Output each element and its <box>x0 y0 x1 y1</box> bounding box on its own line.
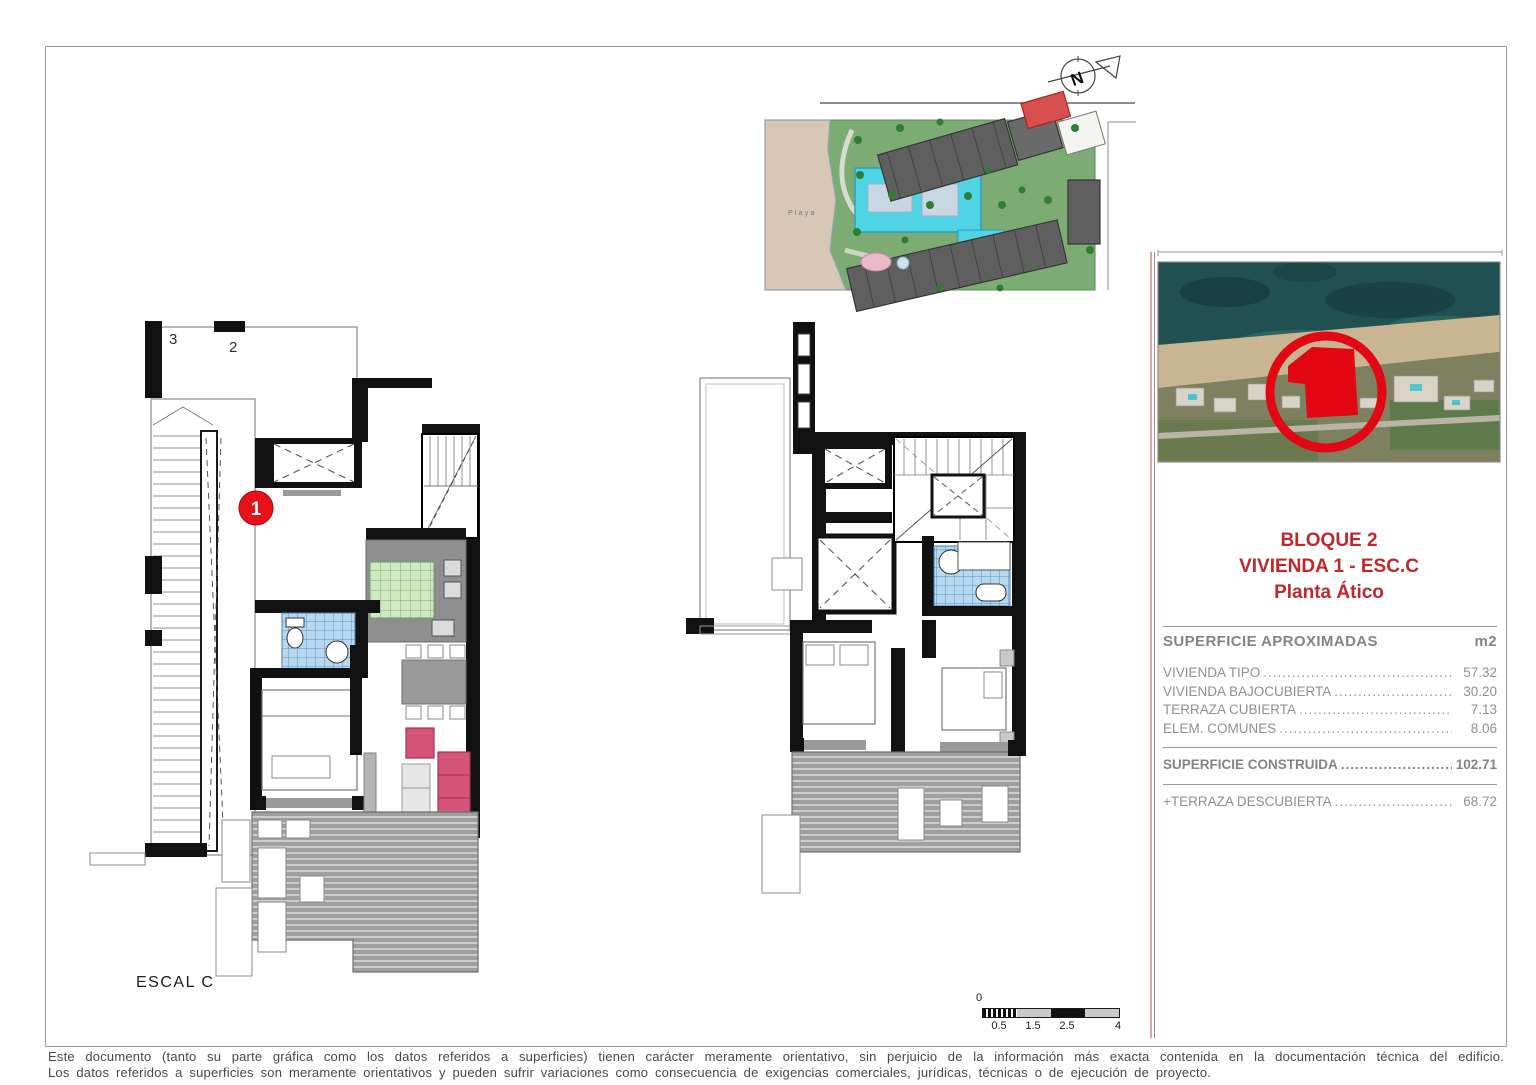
left-plan-title: ESCAL C <box>136 974 214 992</box>
scale-tick: 2.5 <box>1059 1020 1074 1032</box>
table-row: ELEM. COMUNES 8.06 <box>1163 720 1497 739</box>
total-label: SUPERFICIE CONSTRUIDA <box>1163 756 1338 775</box>
row-label: VIVIENDA BAJOCUBIERTA <box>1163 683 1331 702</box>
bed-2 <box>942 650 1014 748</box>
playa-label: Playa <box>788 210 817 217</box>
elevator-shaft-2 <box>818 443 892 489</box>
north-label: N <box>1068 68 1086 90</box>
total-value: 102.71 <box>1455 756 1497 775</box>
unit-marker-number: 1 <box>251 499 262 520</box>
bedroom <box>262 690 357 790</box>
table-row: VIVIENDA BAJOCUBIERTA 30.20 <box>1163 683 1497 702</box>
plan-sheet: Playa N <box>0 0 1536 1085</box>
surface-header-unit: m2 <box>1475 633 1497 650</box>
dot-leader <box>1299 701 1452 720</box>
terrace-2 <box>792 752 1020 852</box>
unit-label-2: 2 <box>229 339 237 356</box>
extra-label: +TERRAZA DESCUBIERTA <box>1163 793 1332 812</box>
terrace <box>252 812 478 972</box>
disclaimer-line-2: Los datos referidos a superficies son me… <box>48 1065 1504 1081</box>
right-floor-plan <box>686 322 1026 893</box>
dot-leader <box>1263 664 1452 683</box>
sofa-set <box>402 728 470 822</box>
elevator-shaft <box>266 438 362 488</box>
surface-table: SUPERFICIE APROXIMADAS m2 VIVIENDA TIPO … <box>1163 626 1497 811</box>
panel-title: BLOQUE 2 VIVIENDA 1 - ESC.C Planta Ático <box>1160 528 1498 606</box>
row-value: 57.32 <box>1455 664 1497 683</box>
staircase-2 <box>894 437 1014 542</box>
aerial-photo <box>1158 262 1500 462</box>
inner-staircase <box>422 434 478 538</box>
total-row: SUPERFICIE CONSTRUIDA 102.71 <box>1163 747 1497 775</box>
row-value: 8.06 <box>1455 720 1497 739</box>
panel-title-block: BLOQUE 2 <box>1160 528 1498 554</box>
scale-zero: 0 <box>976 992 982 1004</box>
row-label: TERRAZA CUBIERTA <box>1163 701 1296 720</box>
dot-leader <box>1334 683 1452 702</box>
surface-header-label: SUPERFICIE APROXIMADAS <box>1163 633 1378 650</box>
disclaimer-line-1: Este documento (tanto su parte gráfica c… <box>48 1049 1504 1065</box>
table-row: VIVIENDA TIPO 57.32 <box>1163 664 1497 683</box>
dot-leader <box>1335 793 1452 812</box>
scale-tick: 4 <box>1115 1020 1121 1032</box>
dining-set <box>402 645 466 719</box>
row-value: 30.20 <box>1455 683 1497 702</box>
extra-value: 68.72 <box>1455 793 1497 812</box>
kitchen <box>366 528 466 642</box>
vent-shaft <box>816 536 894 612</box>
left-floor-plan: 1 <box>90 321 480 976</box>
row-label: ELEM. COMUNES <box>1163 720 1276 739</box>
panel-title-unit: VIVIENDA 1 - ESC.C <box>1160 554 1498 580</box>
site-plan: Playa <box>765 84 1136 311</box>
north-arrow-icon: N <box>1048 56 1120 96</box>
extra-row: +TERRAZA DESCUBIERTA 68.72 <box>1163 784 1497 812</box>
row-label: VIVIENDA TIPO <box>1163 664 1260 683</box>
unit-label-3: 3 <box>169 331 177 348</box>
row-value: 7.13 <box>1455 701 1497 720</box>
scale-bar <box>982 1008 1120 1018</box>
bathroom <box>282 613 355 671</box>
bathroom-2 <box>934 542 1010 606</box>
bed-1 <box>803 642 875 724</box>
disclaimer: Este documento (tanto su parte gráfica c… <box>48 1049 1504 1081</box>
scale-tick: 0.5 <box>991 1020 1006 1032</box>
table-row: TERRAZA CUBIERTA 7.13 <box>1163 701 1497 720</box>
dot-leader <box>1341 756 1452 775</box>
surface-table-header: SUPERFICIE APROXIMADAS m2 <box>1163 626 1497 664</box>
panel-title-floor: Planta Ático <box>1160 580 1498 606</box>
scale-tick: 1.5 <box>1025 1020 1040 1032</box>
dot-leader <box>1279 720 1452 739</box>
